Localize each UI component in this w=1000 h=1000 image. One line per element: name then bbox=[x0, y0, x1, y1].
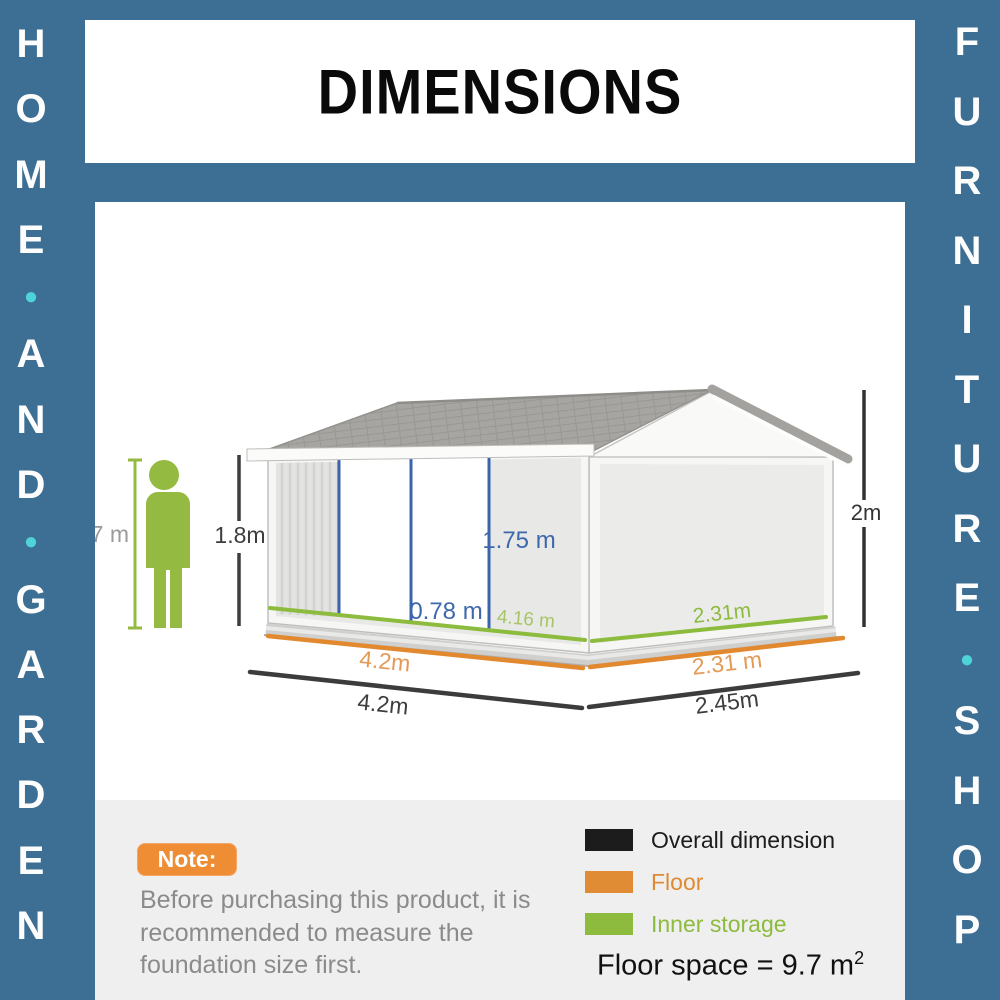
floor-space-text: Floor space = 9.7 m bbox=[597, 950, 854, 982]
person-icon bbox=[146, 460, 190, 628]
brand-letter: H bbox=[17, 24, 46, 64]
brand-letter: O bbox=[951, 840, 982, 880]
brand-left-column: H O M E ● A N D ● G A R D E N bbox=[0, 24, 62, 946]
legend-item-inner-storage: Inner storage bbox=[585, 913, 835, 935]
wall-height-label: 1.8m bbox=[214, 522, 265, 548]
legend-label: Floor bbox=[651, 869, 703, 896]
brand-letter: E bbox=[954, 578, 981, 618]
brand-dot-icon: ● bbox=[960, 648, 975, 672]
door-width-label: 0.78 m bbox=[409, 598, 482, 625]
brand-letter: A bbox=[17, 334, 46, 374]
brand-letter: P bbox=[954, 910, 981, 950]
brand-dot-icon: ● bbox=[24, 530, 39, 554]
brand-right-column: F U R N I T U R E ● S H O P bbox=[936, 22, 998, 950]
note-badge: Note: bbox=[137, 843, 237, 876]
overall-length-label: 4.2m bbox=[356, 688, 410, 719]
brand-letter: U bbox=[953, 439, 982, 479]
brand-letter: M bbox=[14, 155, 47, 195]
floor-space-superscript: 2 bbox=[854, 948, 864, 968]
brand-letter: F bbox=[955, 22, 979, 62]
wall-height-dimension: 1.8m bbox=[214, 455, 265, 626]
brand-letter: T bbox=[955, 370, 979, 410]
brand-dot-icon: ● bbox=[24, 285, 39, 309]
brand-letter: R bbox=[953, 161, 982, 201]
brand-letter: I bbox=[961, 300, 972, 340]
legend-item-overall: Overall dimension bbox=[585, 829, 835, 851]
brand-letter: E bbox=[18, 841, 45, 881]
brand-letter: S bbox=[954, 701, 981, 741]
legend-label: Inner storage bbox=[651, 911, 787, 938]
shed-illustration: 1.75 m 0.78 m 4.16 m 2.31m bbox=[247, 389, 848, 666]
overall-width-label: 2.45m bbox=[694, 685, 761, 719]
door-height-label: 1.75 m bbox=[482, 527, 555, 554]
brand-letter: R bbox=[953, 509, 982, 549]
page: H O M E ● A N D ● G A R D E N F U R N I … bbox=[0, 0, 1000, 1000]
person-height-reference: 1.7 m bbox=[95, 460, 190, 628]
header-banner: DIMENSIONS bbox=[85, 20, 915, 163]
page-title: DIMENSIONS bbox=[318, 55, 683, 128]
brand-letter: N bbox=[17, 400, 46, 440]
brand-letter: N bbox=[17, 906, 46, 946]
brand-letter: D bbox=[17, 465, 46, 505]
brand-letter: A bbox=[17, 645, 46, 685]
legend: Overall dimension Floor Inner storage bbox=[585, 829, 835, 935]
overall-dimension-swatch bbox=[585, 829, 633, 851]
note-badge-label: Note: bbox=[158, 846, 217, 873]
note-text: Before purchasing this product, it is re… bbox=[140, 884, 580, 982]
person-height-label: 1.7 m bbox=[95, 521, 129, 547]
legend-label: Overall dimension bbox=[651, 827, 835, 854]
brand-letter: D bbox=[17, 775, 46, 815]
overall-height-label: 2m bbox=[851, 500, 882, 525]
brand-letter: O bbox=[15, 89, 46, 129]
brand-letter: U bbox=[953, 92, 982, 132]
inner-storage-swatch bbox=[585, 913, 633, 935]
shed-dimension-diagram: 1.7 m 1.8m bbox=[95, 202, 905, 800]
brand-letter: E bbox=[18, 220, 45, 260]
brand-letter: G bbox=[15, 580, 46, 620]
legend-item-floor: Floor bbox=[585, 871, 835, 893]
brand-letter: N bbox=[953, 231, 982, 271]
brand-letter: H bbox=[953, 771, 982, 811]
brand-letter: R bbox=[17, 710, 46, 750]
floor-space-value: Floor space = 9.7 m2 bbox=[597, 948, 864, 983]
floor-length-label: 4.2m bbox=[358, 645, 412, 676]
floor-swatch bbox=[585, 871, 633, 893]
